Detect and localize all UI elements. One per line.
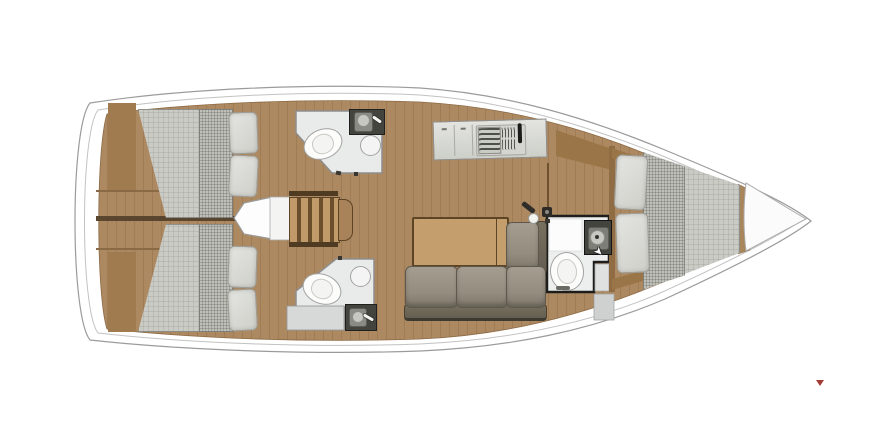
aft-starboard-cabin-wall: [108, 252, 136, 332]
pillow: [227, 288, 258, 331]
mast-post: [542, 207, 552, 217]
cupboard-divider: [454, 125, 456, 156]
forward-bulkhead: [609, 146, 615, 292]
faucet: [372, 115, 382, 123]
shower-circle: [360, 135, 381, 156]
shower-circle: [350, 266, 371, 287]
cupboard-divider: [472, 124, 474, 155]
red-triangle-marker: [816, 380, 824, 386]
sink-drainer: [502, 127, 516, 137]
companionway-stairs: [289, 197, 340, 243]
sofa-seat-cushion: [405, 266, 458, 308]
pillow: [615, 212, 650, 273]
companionway-bottom-step: [338, 199, 353, 241]
table-fold-line: [496, 219, 498, 265]
sink-counter: [349, 109, 385, 135]
yacht-floor-plan: ➤: [0, 0, 890, 446]
toilet-base-bar: [556, 286, 570, 290]
shower-tray: [287, 306, 344, 330]
pillow: [227, 246, 257, 289]
salon-lamp-shade: [528, 213, 539, 224]
sofa-seat-cushion: [456, 266, 508, 308]
aft-port-cabin-wall: [108, 103, 136, 191]
door-hinge: [354, 172, 358, 176]
door-hinge: [338, 256, 342, 260]
sink-drainer: [502, 139, 516, 149]
cupboard-handle: [442, 128, 447, 130]
salon-folding-table: [412, 217, 509, 267]
cupboard-handle: [461, 128, 466, 130]
stove-burners: [478, 127, 502, 155]
stern-step-line: [96, 248, 162, 250]
sink-counter: [345, 304, 377, 331]
pillow: [228, 112, 258, 155]
door-hinge: [545, 219, 550, 223]
companionway-wall: [289, 191, 338, 196]
sink-bowl: [357, 114, 370, 127]
companionway-wall: [289, 242, 338, 247]
drain-dot: [595, 235, 599, 239]
sink-bowl: [352, 311, 364, 323]
door-hinge: [336, 171, 342, 176]
sofa-corner-cushion: [506, 266, 546, 308]
hull-notch-gray: [595, 264, 609, 291]
sofa-chaise-cushion: [506, 222, 539, 271]
pillow: [614, 154, 649, 211]
galley-faucet: [518, 123, 523, 143]
galley-counter: [433, 119, 548, 161]
stern-step-line: [96, 190, 162, 192]
side-deck-gray: [594, 294, 614, 320]
pillow: [228, 154, 259, 197]
head-forward-door-panel: [549, 219, 582, 251]
